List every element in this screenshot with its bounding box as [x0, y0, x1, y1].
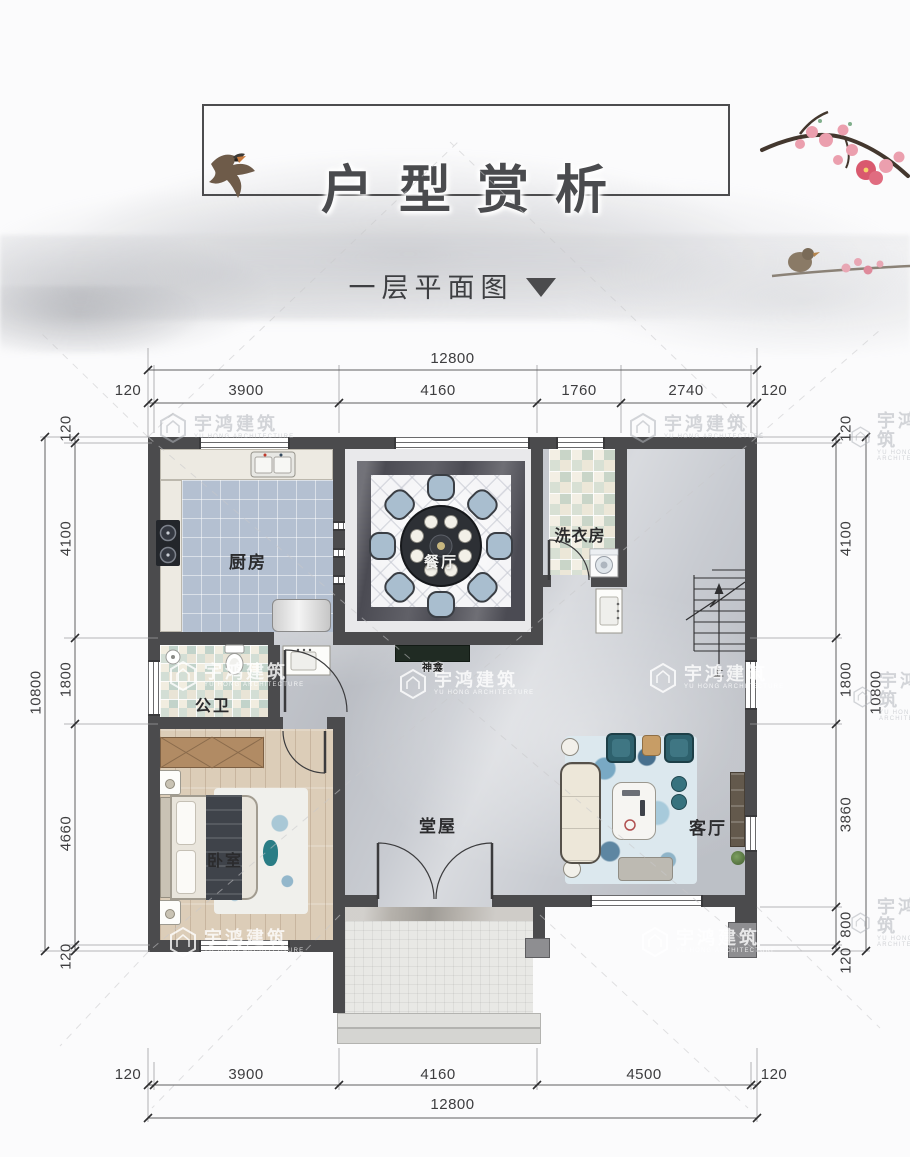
porch-threshold	[345, 907, 533, 921]
dim-right-4100: 4100	[838, 499, 855, 579]
mountain-ridge	[0, 286, 280, 352]
dim-top-120l: 120	[98, 382, 158, 399]
nightstand-top	[157, 770, 181, 795]
watermark: 宇鸿建筑YU HONG ARCHITECTURE	[850, 898, 910, 948]
pass-window-1	[333, 521, 345, 531]
dim-left-120t: 120	[58, 389, 75, 469]
small-bird-icon	[772, 248, 910, 276]
dim-bottom-total: 12800	[148, 1096, 757, 1113]
dim-left-4660: 4660	[58, 794, 75, 874]
right-pier	[728, 922, 757, 958]
dim-right-120b: 120	[838, 921, 855, 1001]
wall-entry-left	[345, 895, 378, 907]
dim-bot-120l: 120	[98, 1066, 158, 1083]
laundry-floor	[549, 449, 615, 575]
wall-laundry-east	[615, 437, 627, 587]
label-living: 客厅	[666, 814, 750, 839]
dim-left-1800: 1800	[58, 640, 75, 720]
wall-kitchen-south	[160, 632, 274, 645]
side-table-round-top	[561, 738, 579, 756]
label-kitchen: 厨房	[206, 548, 290, 573]
label-bedroom: 卧室	[183, 847, 267, 871]
porch-column	[525, 938, 550, 958]
wall-entry-right	[492, 895, 545, 907]
label-laundry: 洗衣房	[538, 522, 622, 546]
kitchen-counter-left	[160, 480, 182, 632]
dim-top-120r: 120	[744, 382, 804, 399]
dim-top-2740: 2740	[626, 382, 746, 399]
page-title: 户型赏析	[202, 148, 726, 223]
label-dining: 餐厅	[411, 551, 471, 572]
wall-bathroom-east	[268, 645, 280, 717]
subtitle: 一层平面图	[349, 266, 514, 305]
dim-top-3900: 3900	[186, 382, 306, 399]
dim-left-120b: 120	[58, 917, 75, 997]
wall-laundry-south-a	[543, 575, 551, 587]
ottoman-2	[671, 794, 687, 810]
porch-step-1	[337, 1013, 541, 1028]
plant	[731, 851, 745, 865]
wall-dining-south	[333, 632, 543, 645]
armchair-2	[664, 733, 694, 763]
label-bathroom: 公卫	[171, 692, 255, 716]
label-hall: 堂屋	[396, 812, 480, 837]
wall-bedroom-east	[333, 724, 345, 1013]
watermark: 宇鸿建筑YU HONG ARCHITECTURE	[850, 412, 910, 462]
ottoman-1	[671, 776, 687, 792]
dim-left-total: 10800	[28, 653, 45, 733]
wall-bathroom-south-a	[148, 717, 283, 729]
nightstand-bottom	[157, 900, 181, 925]
down-triangle-icon	[526, 278, 556, 297]
label-shrine: 神龛	[408, 659, 458, 674]
dim-top-4160: 4160	[378, 382, 498, 399]
sofa	[560, 762, 601, 864]
armchair-1	[606, 733, 636, 763]
coffee-table	[612, 782, 656, 840]
subtitle-row: 一层平面图	[280, 266, 624, 305]
plum-blossom-icon	[762, 112, 908, 185]
kitchen-counter-top	[160, 449, 333, 480]
dim-top-total: 12800	[148, 350, 757, 367]
dim-left-4100: 4100	[58, 499, 75, 579]
porch-floor	[345, 921, 533, 1013]
window-living-south	[590, 895, 703, 907]
wardrobe	[160, 737, 264, 768]
dim-top-1760: 1760	[549, 382, 609, 399]
bench	[618, 857, 673, 881]
window-kitchen-north	[199, 437, 290, 449]
window-bathroom-west	[148, 660, 160, 716]
dim-bot-120r: 120	[744, 1066, 804, 1083]
window-stair-east	[745, 660, 757, 710]
right-pier-cap	[735, 907, 757, 923]
dim-bot-4500: 4500	[584, 1066, 704, 1083]
window-laundry-north	[556, 437, 605, 449]
dim-bot-3900: 3900	[186, 1066, 306, 1083]
pillow-1	[176, 801, 196, 845]
dim-bot-4160: 4160	[378, 1066, 498, 1083]
pass-window-3	[333, 575, 345, 585]
wall-kitchen-east	[333, 437, 345, 645]
dim-right-3860: 3860	[838, 775, 855, 855]
floorplan-page: 户型赏析	[0, 0, 910, 1157]
porch-step-2	[337, 1028, 541, 1044]
wall-porch-east-stub	[533, 907, 545, 938]
dim-right-1800: 1800	[838, 640, 855, 720]
fridge	[272, 599, 331, 632]
dim-right-120t: 120	[838, 389, 855, 469]
pass-window-2	[333, 548, 345, 558]
window-bedroom-south	[199, 940, 290, 952]
window-dining-north	[394, 437, 530, 449]
side-table-square	[642, 735, 661, 756]
dining-floor-inner	[371, 475, 511, 607]
dim-right-total: 10800	[868, 653, 885, 733]
